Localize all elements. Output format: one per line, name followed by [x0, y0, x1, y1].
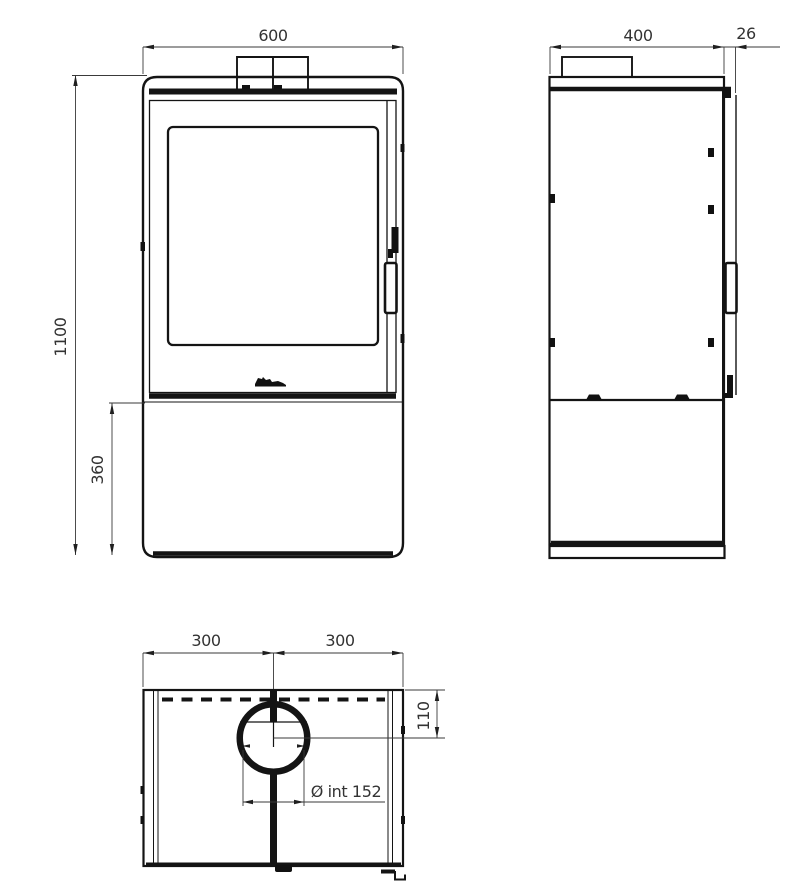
- front-view: 600 1100 360: [51, 26, 405, 557]
- top-view: 300 300 110 Ø int 152: [141, 631, 446, 880]
- stove-body-side: [550, 77, 725, 544]
- front-base-height-dimension-label: 360: [88, 455, 107, 485]
- side-view: 400 26: [549, 24, 780, 558]
- top-flue-diameter-label: Ø int 152: [311, 782, 382, 801]
- flue-collar-side: [562, 57, 632, 77]
- stove-dimension-drawing: 600 1100 360 400 26: [0, 0, 811, 889]
- side-depth-dimension-label: 400: [623, 26, 653, 45]
- front-height-dimension-label: 1100: [51, 317, 70, 356]
- stove-body-front: [143, 77, 403, 557]
- front-width-dimension-label: 600: [258, 26, 288, 45]
- top-right-half-width-label: 300: [325, 631, 355, 650]
- plinth-side: [550, 546, 725, 558]
- top-flue-offset-label: 110: [414, 701, 433, 731]
- drawing-sheet: 600 1100 360 400 26: [0, 0, 811, 889]
- top-left-half-width-label: 300: [191, 631, 221, 650]
- bottom-center-tab: [275, 865, 292, 872]
- door-handle: [385, 263, 397, 313]
- bottom-right-foot: [395, 871, 405, 880]
- door-handle-side: [726, 263, 737, 313]
- side-door-protrusion-label: 26: [736, 24, 756, 43]
